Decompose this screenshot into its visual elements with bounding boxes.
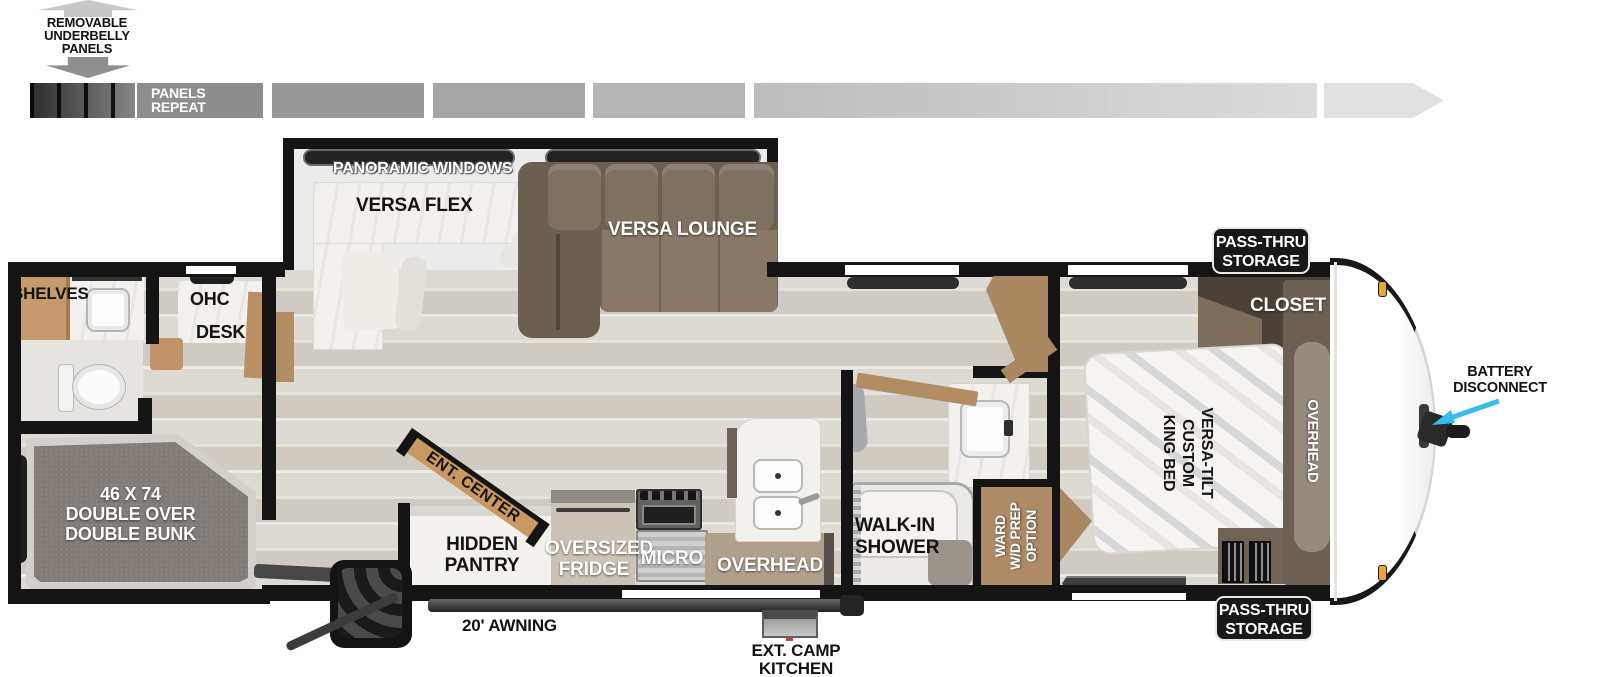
front-cap-seam — [1334, 262, 1337, 601]
wall-bottom-rear — [8, 589, 270, 604]
overhead-bedroom-text: OVERHEAD — [1304, 399, 1321, 482]
panel-segment — [433, 83, 585, 118]
wall-rear-bath-stub — [138, 398, 152, 434]
battery-disconnect-label: BATTERY DISCONNECT — [1444, 364, 1556, 396]
panoramic-windows-label: PANORAMIC WINDOWS — [333, 161, 512, 178]
bunk-size: 46 X 74 — [48, 484, 213, 504]
underbelly-line3: PANELS — [22, 42, 152, 55]
chair-seat — [340, 251, 402, 332]
window-rear-top — [186, 266, 236, 274]
bunk-label: 46 X 74 DOUBLE OVER DOUBLE BUNK — [48, 484, 213, 544]
hidden-pantry-label: HIDDEN PANTRY — [416, 534, 548, 576]
closet-label: CLOSET — [1250, 296, 1326, 316]
bath-sink-mid — [960, 400, 1010, 458]
overhead-kitchen-label: OVERHEAD — [716, 556, 824, 576]
pass-thru-bottom-line2: STORAGE — [1217, 620, 1311, 639]
pantry-line2: PANTRY — [416, 555, 548, 576]
bed-label: VERSA-TILT CUSTOM KING BED — [1142, 393, 1234, 513]
nightstand-slide — [1222, 541, 1244, 583]
camp-kitchen-line1: EXT. CAMP — [738, 642, 854, 660]
window-main-top — [845, 265, 959, 275]
stove-burners — [640, 491, 698, 500]
ward-line2: W/D PREP — [1008, 496, 1024, 576]
walk-in-shower-label: WALK-IN SHOWER — [855, 515, 939, 559]
versa-lounge-label: VERSA LOUNGE — [608, 220, 757, 240]
fridge-label: OVERSIZED FRIDGE — [545, 538, 643, 580]
sink-drain-dot — [775, 510, 781, 516]
panels-repeat-label: PANELS REPEAT — [151, 86, 206, 114]
wall-bath-left — [841, 370, 853, 593]
wall-rear-bath-bottom — [8, 421, 144, 434]
overhead-bedroom-label: OVERHEAD — [1305, 391, 1321, 491]
marker-light-top — [1378, 281, 1387, 297]
sink-drain-dot — [775, 473, 781, 479]
panel-arrow-icon — [1324, 83, 1444, 118]
bunk-line3: DOUBLE BUNK — [48, 524, 213, 544]
panel-segment — [593, 83, 745, 118]
window-sill — [847, 277, 959, 289]
ohc-label: OHC — [190, 290, 229, 309]
pass-thru-door-strip — [1072, 593, 1186, 600]
sink-hinge — [1004, 420, 1013, 436]
shelves-label: SHELVES — [12, 285, 89, 303]
nightstand-slide — [1249, 541, 1271, 583]
down-arrow-icon — [46, 57, 130, 78]
panel-segment-long — [754, 83, 1317, 118]
panel-segment-dark — [30, 83, 135, 118]
overhead-cabinet-edge — [824, 533, 834, 588]
panel-segment — [272, 83, 424, 118]
toilet-bowl — [72, 364, 126, 410]
sofa-cushion — [548, 164, 601, 230]
bed-line1: VERSA-TILT — [1198, 393, 1217, 513]
shower-line2: SHOWER — [855, 537, 939, 559]
battery-arrow-icon — [1424, 393, 1524, 433]
panel-segment-repeat: PANELS REPEAT — [137, 83, 263, 118]
camp-kitchen-box — [762, 610, 818, 638]
versa-flex-label: VERSA FLEX — [356, 196, 473, 216]
floorplan-canvas: REMOVABLE UNDERBELLY PANELS PANELS REPEA… — [0, 0, 1600, 677]
wall-rear-bath-vertical — [146, 262, 159, 344]
ward-line1: WARD — [993, 496, 1009, 576]
panels-repeat-line1: PANELS — [151, 86, 206, 100]
ward-line3: OPTION — [1024, 496, 1040, 576]
sofa-seat — [600, 230, 778, 312]
bed-line3: KING BED — [1160, 393, 1179, 513]
pass-thru-badge-bottom: PASS-THRU STORAGE — [1215, 596, 1313, 641]
counter-shelf-brown — [727, 428, 737, 498]
ward-label: WARD W/D PREP OPTION — [976, 496, 1056, 576]
bunk-line2: DOUBLE OVER — [48, 504, 213, 524]
fridge-line1: OVERSIZED — [545, 538, 643, 559]
camp-kitchen-line2: KITCHEN — [738, 660, 854, 677]
fridge-handle — [556, 508, 630, 512]
pass-thru-top-line2: STORAGE — [1214, 252, 1308, 271]
camp-kitchen-label: EXT. CAMP KITCHEN — [738, 642, 854, 677]
underbelly-callout: REMOVABLE UNDERBELLY PANELS — [22, 16, 152, 55]
fridge-line2: FRIDGE — [545, 559, 643, 580]
camp-kitchen-door-strip — [622, 590, 820, 598]
micro-label: MICRO — [640, 549, 704, 569]
marker-light-bottom — [1378, 565, 1387, 581]
oven-window — [642, 505, 696, 525]
wall-divider-rear — [262, 262, 276, 520]
bath-sink — [86, 288, 130, 332]
pantry-line1: HIDDEN — [416, 534, 548, 555]
pass-thru-top-line1: PASS-THRU — [1214, 233, 1308, 252]
awning-end-bracket — [840, 595, 864, 616]
battery-line1: BATTERY — [1444, 364, 1556, 380]
pass-thru-bottom-line1: PASS-THRU — [1217, 601, 1311, 620]
awning-label: 20' AWNING — [462, 617, 557, 635]
shower-line1: WALK-IN — [855, 515, 939, 537]
desk-label: DESK — [196, 323, 245, 342]
window-bedroom-top — [1068, 265, 1188, 275]
pass-thru-badge-top: PASS-THRU STORAGE — [1212, 227, 1310, 274]
panels-repeat-line2: REPEAT — [151, 100, 206, 114]
bed-line2: CUSTOM — [1179, 393, 1198, 513]
window-sill — [1069, 277, 1187, 289]
